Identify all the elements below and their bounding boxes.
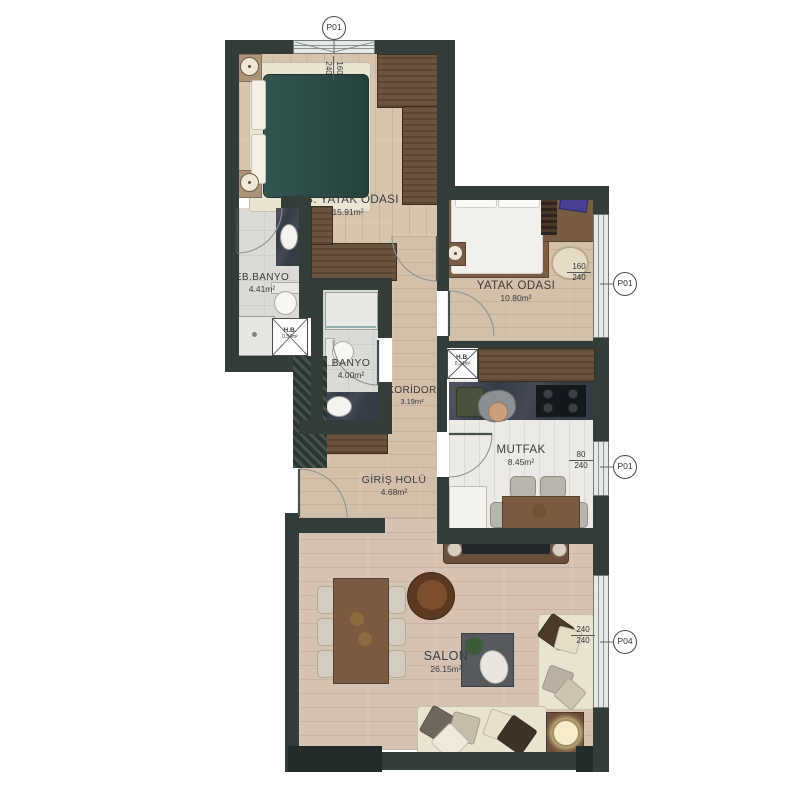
room-name: SALON (424, 649, 468, 663)
window-dim-top: 160 240 (324, 56, 344, 80)
wardrobe (402, 106, 439, 205)
wall-bottom-block (288, 746, 382, 772)
wall-bath-left (311, 290, 323, 432)
room-name: GİRİŞ HOLÜ (362, 474, 427, 486)
dining-chair (388, 650, 406, 678)
room-area: 3.19m² (387, 397, 436, 406)
window-kitchen (593, 441, 609, 496)
room-area: 8.45m² (496, 457, 545, 467)
window-tag-bedroom: P01 (613, 272, 637, 296)
table-decor (350, 612, 364, 626)
window-dim-salon: 240 240 (571, 625, 595, 645)
shower-glass (325, 326, 376, 328)
tv-speaker (552, 542, 567, 557)
dining-table (333, 578, 389, 684)
shaft-hb2: H.B. 0,34m² (447, 349, 478, 379)
room-area: 26.15m² (424, 664, 468, 674)
window-dim-bedroom: 160 240 (567, 262, 591, 282)
room-label-bath: BANYO 4.00m² (332, 357, 371, 380)
dim-width: 160 (334, 56, 345, 80)
shaft-hb2-label: H.B. (448, 354, 477, 361)
closet-band (478, 348, 595, 382)
floor-salon-strip (385, 518, 437, 533)
window-master-bedroom (293, 40, 375, 54)
wall-master-right (437, 40, 455, 200)
wall-bedroom-left-a (437, 200, 449, 291)
wash-basin (326, 396, 352, 417)
room-label-salon: SALON 26.15m² (424, 649, 468, 674)
kitchen-cabinet (449, 486, 487, 530)
room-area: 4.41m² (235, 284, 289, 294)
kitchen-chair (540, 476, 566, 498)
wall-bedroom-top (437, 186, 609, 200)
window-bedroom (593, 214, 609, 338)
table-decor (358, 632, 372, 646)
wall-kitchen-left-a (437, 348, 447, 432)
tv-speaker (447, 542, 462, 557)
room-name: EB. YATAK ODASI (297, 194, 399, 206)
window-tag-kitchen: P01 (613, 455, 637, 479)
dim-height: 240 (567, 273, 591, 283)
dim-width: 80 (569, 450, 593, 461)
shaft-hb2-area: 0,34m² (448, 361, 477, 367)
shaft-hb1: H.B. 0,54m² (272, 318, 308, 356)
room-name: KORİDOR (387, 385, 436, 396)
wall-salon-top (299, 518, 385, 533)
master-bed-pillow (251, 80, 266, 130)
toilet-bowl (274, 291, 297, 315)
wall-bath-right-a (378, 278, 392, 338)
wardrobe (377, 54, 439, 108)
dim-height: 240 (569, 461, 593, 471)
kitchen-chair (510, 476, 536, 498)
room-label-master-bath: EB.BANYO 4.41m² (235, 272, 289, 294)
room-area: 10.80m² (477, 293, 556, 303)
dim-height: 240 (324, 56, 334, 80)
armchair-seat (417, 580, 447, 610)
room-label-kitchen: MUTFAK 8.45m² (496, 444, 545, 467)
room-name: BANYO (332, 357, 371, 369)
wall-masterbath-top-a (225, 196, 237, 208)
room-label-master-bedroom: EB. YATAK ODASI 15.91m² (297, 194, 399, 217)
room-label-bedroom: YATAK ODASI 10.80m² (477, 280, 556, 303)
shower (325, 292, 378, 330)
window-dim-kitchen: 80 240 (569, 450, 593, 470)
person-figure-head (488, 402, 508, 422)
dim-width: 160 (567, 262, 591, 273)
room-area: 4.00m² (332, 370, 371, 380)
shaft-hb1-area: 0,54m² (273, 334, 307, 340)
wash-basin (280, 224, 298, 250)
room-area: 4.68m² (362, 487, 427, 497)
bedside-lamp (447, 245, 463, 261)
wall-hall-top (299, 420, 392, 434)
room-name: YATAK ODASI (477, 280, 556, 292)
room-label-corridor: KORİDOR 3.19m² (387, 385, 436, 406)
wall-kitchen-bottom (437, 528, 593, 544)
shaft-hb1-label: H.B. (273, 327, 307, 334)
floor-plan: H.B. 0,54m² H.B. 0,34m² P01 160 240 (0, 0, 800, 800)
bedside-lamp (240, 173, 259, 192)
wall-kitchen-left-b (437, 477, 449, 530)
dim-height: 240 (571, 636, 595, 646)
shower-drain (252, 332, 257, 337)
wall-closet-edge (437, 341, 593, 348)
room-name: MUTFAK (496, 444, 545, 456)
dining-chair (388, 618, 406, 646)
wall-salon-left (285, 513, 299, 772)
master-bed-duvet (263, 74, 369, 198)
cooktop (536, 385, 586, 417)
room-area: 15.91m² (297, 207, 399, 217)
table-lamp (552, 719, 580, 747)
room-label-entry-hall: GİRİŞ HOLÜ 4.68m² (362, 474, 427, 497)
table-plant (532, 504, 546, 518)
room-name: EB.BANYO (235, 272, 289, 283)
window-tag-salon: P04 (613, 630, 637, 654)
window-salon (593, 575, 609, 708)
dim-width: 240 (571, 625, 595, 636)
wardrobe (311, 243, 397, 281)
dining-chair (388, 586, 406, 614)
bedside-lamp (240, 57, 259, 76)
window-tag-top: P01 (322, 16, 346, 40)
